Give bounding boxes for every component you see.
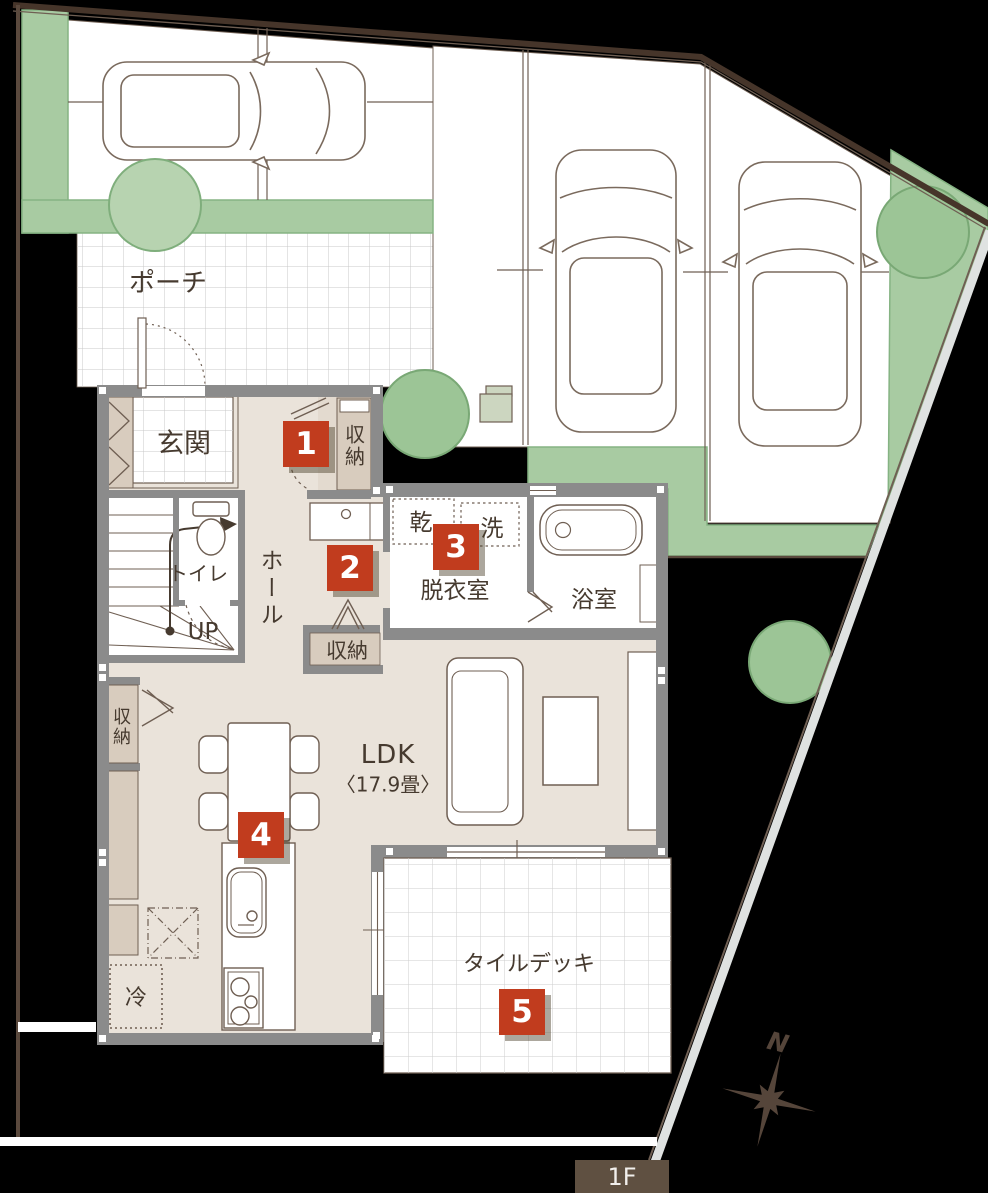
car-3 — [723, 162, 877, 446]
compass-icon — [711, 1042, 827, 1158]
bathtub — [540, 505, 642, 555]
feature-marker-2[interactable]: 2 — [327, 545, 373, 591]
label-ldk: LDK — [361, 740, 416, 770]
label-refrigerator: 冷 — [125, 980, 147, 1012]
label-ldk-area: 〈17.9畳〉 — [336, 769, 441, 798]
coffee-table — [543, 697, 598, 785]
label-dressing-room: 脱衣室 — [421, 571, 490, 605]
tree-icon — [109, 159, 201, 251]
feature-marker-5[interactable]: 5 — [499, 989, 545, 1035]
label-toilet: トイレ — [168, 558, 228, 587]
label-bathroom: 浴室 — [571, 580, 617, 614]
label-hall: ホール — [252, 549, 286, 630]
label-dryer: 乾 — [410, 503, 433, 537]
label-ldk-storage: 収納 — [107, 707, 133, 747]
floor-badge: 1F — [575, 1160, 669, 1193]
feature-marker-3[interactable]: 3 — [433, 524, 479, 570]
label-entrance: 玄関 — [157, 422, 211, 461]
sofa — [447, 658, 523, 825]
car-1 — [103, 53, 365, 169]
label-washer: 洗 — [481, 509, 504, 543]
kitchen-sink — [227, 868, 266, 937]
car-2 — [540, 150, 692, 432]
feature-marker-1[interactable]: 1 — [283, 421, 329, 467]
label-stairs-up: UP — [188, 619, 219, 645]
tv-board — [628, 652, 657, 830]
kitchen-stove — [224, 968, 263, 1028]
feature-marker-4[interactable]: 4 — [238, 812, 284, 858]
label-tile-deck: タイルデッキ — [463, 946, 595, 978]
tree-icon — [877, 186, 969, 278]
tree-icon — [381, 370, 469, 458]
label-entrance-storage: 収納 — [340, 424, 369, 468]
label-porch: ポーチ — [129, 263, 207, 300]
label-hall-storage: 収納 — [326, 635, 368, 665]
floor-plan-drawing — [0, 0, 988, 1193]
floor-plan: ポーチ 玄関 収納 トイレ ホール UP 乾 洗 脱衣室 浴室 収納 収納 LD… — [0, 0, 988, 1193]
